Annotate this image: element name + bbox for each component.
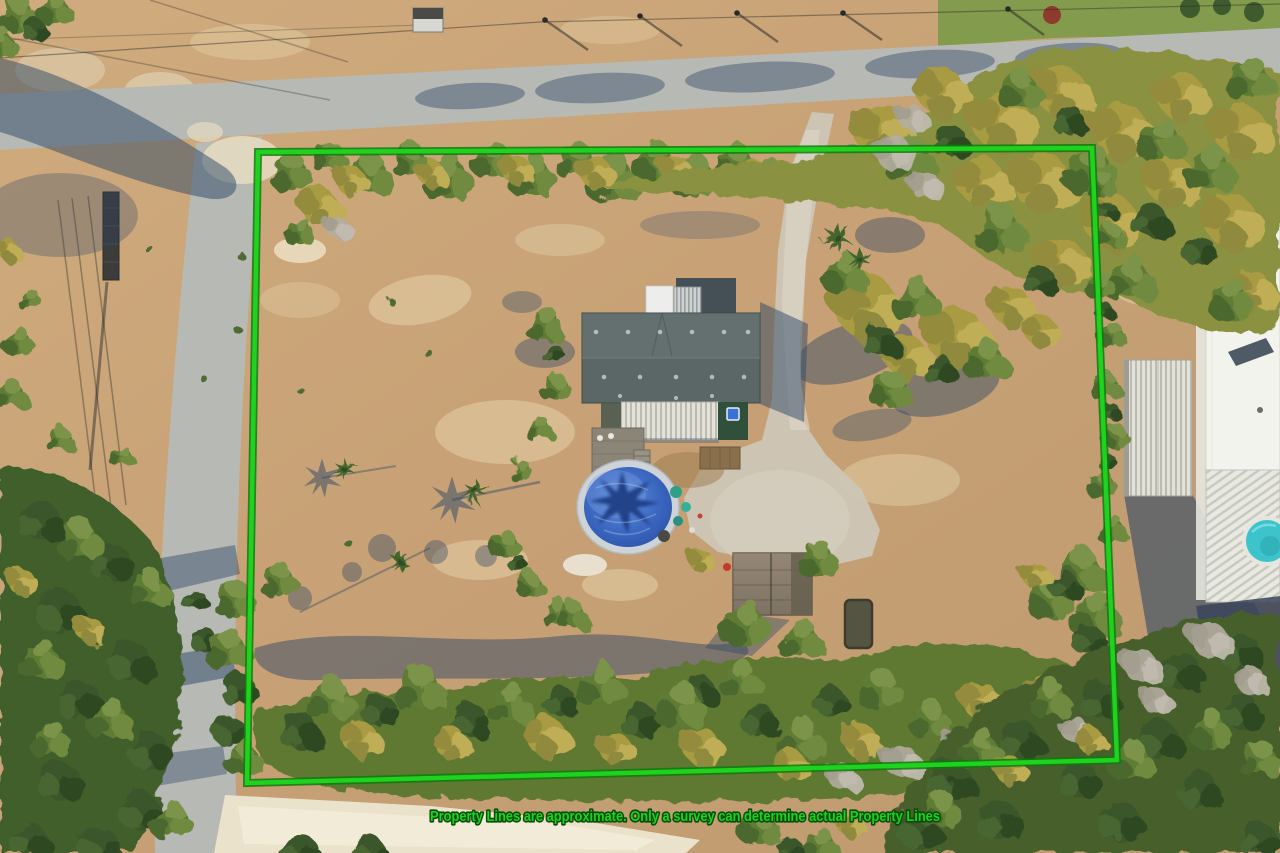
blue-sign [727,408,739,420]
aerial-photo-canvas: Property Lines are approximate. Only a s… [0,0,1280,853]
disclaimer-text: Property Lines are approximate. Only a s… [430,809,940,825]
aerial-photo: Property Lines are approximate. Only a s… [0,0,1280,853]
white-shed-roof [646,286,673,314]
trampoline-frame [845,600,872,648]
red-item [723,563,731,571]
red-bush [1043,6,1061,24]
metal-box-roof [674,287,701,315]
